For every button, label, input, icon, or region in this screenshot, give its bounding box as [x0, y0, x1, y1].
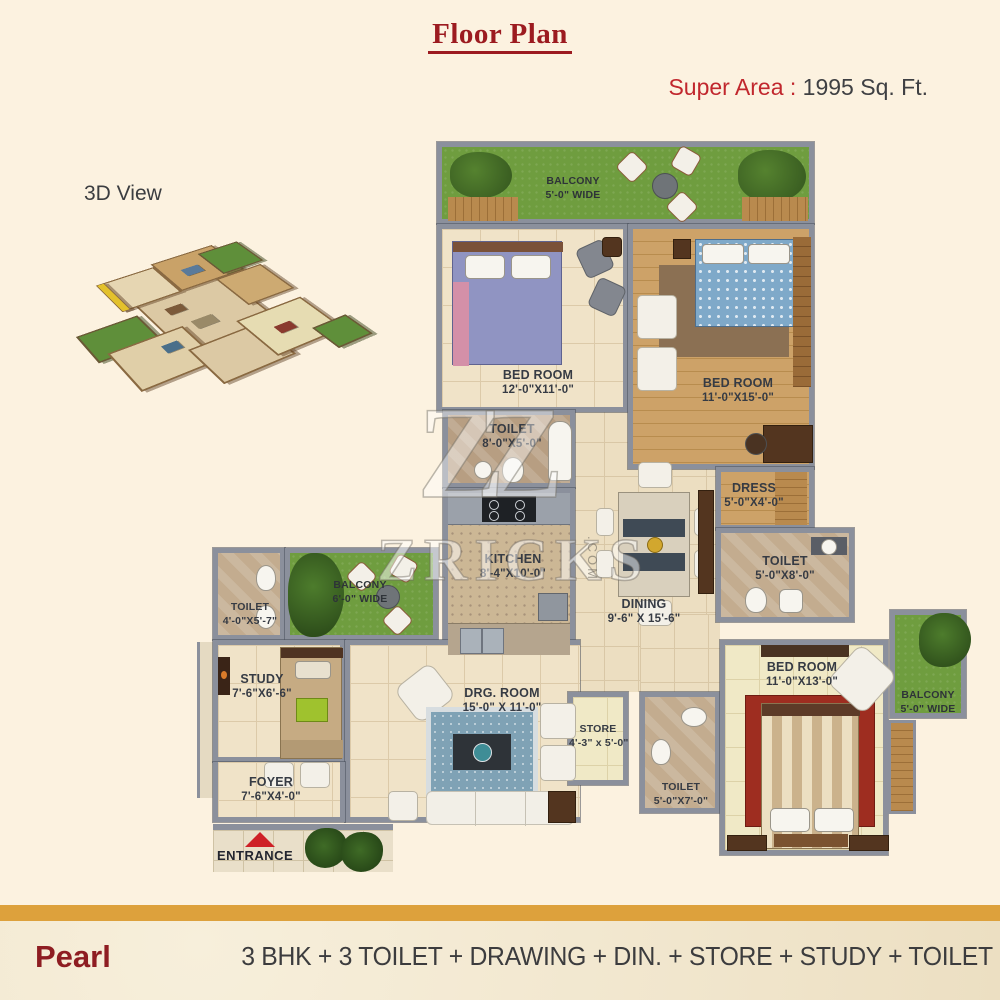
bed-blanket: [281, 740, 343, 758]
deck: [742, 197, 808, 221]
kitchen-sink: [482, 628, 504, 654]
room-label-store: STORE 4'-3" x 5'-0": [569, 723, 627, 750]
super-area: Super Area : 1995 Sq. Ft.: [668, 74, 928, 101]
3d-view-image: [40, 236, 369, 422]
footer: Pearl 3 BHK + 3 TOILET + DRAWING + DIN. …: [0, 921, 1000, 1000]
room-balcony-left: BALCONY 6'-0" WIDE: [285, 548, 438, 640]
room-label-balcony-left: BALCONY 6'-0" WIDE: [314, 579, 406, 606]
deck-strip: [888, 720, 916, 814]
decor-bowl: [473, 743, 492, 762]
view-3d-label: 3D View: [84, 182, 162, 206]
burner: [489, 511, 499, 521]
room-label-toilet-left: TOILET 4'-0"X5'-7": [218, 601, 282, 628]
room-label-toilet-2: TOILET 5'-0"X8'-0": [735, 553, 835, 584]
room-balcony-right: BALCONY 5'-0" WIDE: [890, 610, 966, 718]
patio-table: [652, 173, 678, 199]
toilet-seat: [651, 739, 671, 765]
room-label-balcony-top: BALCONY 5'-0" WIDE: [508, 175, 638, 202]
room-kitchen: KITCHEN 8'-4"X10'-0": [443, 488, 575, 660]
bed: [695, 239, 795, 327]
room-label-bedroom-1: BED ROOM 12'-0"X11'-0": [477, 367, 599, 398]
room-label-bedroom-3: BED ROOM 11'-0"X13'-0": [737, 659, 867, 690]
patio-chair: [381, 604, 414, 637]
side-table: [602, 237, 622, 257]
desk: [763, 425, 813, 463]
patio-chair: [670, 145, 703, 178]
room-toilet-3: TOILET 5'-0"X7'-0": [640, 692, 720, 813]
bed-bench: [774, 834, 848, 847]
footer-gold-bar: [0, 905, 1000, 921]
project-name: Pearl: [35, 939, 111, 975]
dining-runner: [623, 553, 685, 571]
page-title-text: Floor Plan: [428, 18, 572, 54]
room-toilet-left: TOILET 4'-0"X5'-7": [213, 548, 285, 640]
pillow: [748, 244, 790, 264]
armchair: [637, 347, 677, 391]
super-area-value: 1995 Sq. Ft.: [796, 74, 928, 100]
bush: [738, 150, 806, 202]
page-title: Floor Plan: [0, 18, 1000, 51]
washbasin: [681, 707, 707, 727]
bed: [280, 647, 342, 759]
window-ledge: [197, 642, 213, 798]
room-toilet-1: TOILET 8'-0"X5'-0": [443, 410, 575, 488]
bed-headboard: [453, 242, 563, 252]
dining-chair: [596, 508, 614, 536]
room-foyer: FOYER 7'-6"X4'-0": [213, 762, 345, 822]
sofa-seam: [475, 792, 476, 826]
stove: [482, 496, 536, 522]
room-label-study: STUDY 7'-6"X6'-6": [222, 671, 302, 702]
room-toilet-2: TOILET 5'-0"X8'-0": [716, 528, 854, 622]
dining-centerpiece: [647, 537, 663, 553]
wardrobe: [793, 237, 811, 387]
room-dress: DRESS 5'-0"X4'-0": [716, 467, 814, 530]
washbasin: [474, 461, 492, 479]
pillow: [511, 255, 551, 279]
kitchen-counter: [448, 493, 570, 525]
bed-blanket: [453, 282, 469, 366]
entrance-label: ENTRANCE: [217, 848, 293, 863]
side-table: [548, 791, 576, 823]
pillow: [702, 244, 744, 264]
configuration-text: 3 BHK + 3 TOILET + DRAWING + DIN. + STOR…: [241, 943, 969, 972]
room-label-toilet-1: TOILET 8'-0"X5'-0": [460, 421, 564, 452]
pillow: [770, 808, 810, 832]
fridge: [538, 593, 568, 621]
sideboard: [698, 490, 714, 594]
coffee-table: [453, 734, 511, 770]
room-store: STORE 4'-3" x 5'-0": [568, 692, 628, 785]
side-table: [849, 835, 889, 851]
room-label-dining: DINING 9'-6" X 15'-6": [594, 596, 694, 627]
ottoman: [388, 791, 418, 821]
desk-chair: [745, 433, 767, 455]
room-bedroom-3: BED ROOM 11'-0"X13'-0": [720, 640, 888, 855]
room-drawing: DRG. ROOM 15'-0" X 11'-0": [345, 640, 580, 822]
entrance-arrow-icon: [245, 832, 275, 847]
dining-chair: [638, 462, 672, 488]
room-label-toilet-3: TOILET 5'-0"X7'-0": [647, 781, 715, 808]
room-label-foyer: FOYER 7'-6"X4'-0": [226, 774, 316, 805]
room-label-drawing: DRG. ROOM 15'-0" X 11'-0": [442, 685, 562, 716]
room-bedroom-1: BED ROOM 12'-0"X11'-0": [437, 224, 628, 412]
toilet-seat: [256, 565, 276, 591]
kitchen-counter-sink: [448, 623, 570, 655]
kitchen-sink: [460, 628, 482, 654]
room-bedroom-2: BED ROOM 11'-0"X15'-0": [628, 224, 814, 469]
armchair: [637, 295, 677, 339]
floor-plan-3d-view: [30, 195, 370, 450]
room-balcony-top: BALCONY 5'-0" WIDE: [437, 142, 814, 224]
rug: [426, 707, 538, 797]
burner: [515, 500, 525, 510]
dining-chair: [596, 550, 614, 578]
room-label-dress: DRESS 5'-0"X4'-0": [723, 480, 785, 511]
armchair: [587, 276, 628, 318]
burner: [489, 500, 499, 510]
armchair: [540, 745, 576, 781]
bush: [450, 152, 512, 198]
bedside-table: [673, 239, 691, 259]
dining-runner: [623, 519, 685, 537]
super-area-label: Super Area :: [668, 74, 796, 100]
pillow: [465, 255, 505, 279]
entrance-area: ENTRANCE: [213, 824, 393, 872]
pillow: [814, 808, 854, 832]
room-label-bedroom-2: BED ROOM 11'-0"X15'-0": [673, 375, 803, 406]
room-label-kitchen: KITCHEN 8'-4"X10'-0": [451, 551, 575, 582]
bed-headboard: [281, 648, 343, 658]
side-table: [727, 835, 767, 851]
tv-unit: [761, 645, 849, 657]
palm-plant: [341, 832, 383, 872]
burner: [515, 511, 525, 521]
bed: [761, 703, 859, 849]
floor-plan-page: Floor Plan Super Area : 1995 Sq. Ft. 3D …: [0, 0, 1000, 1000]
bed: [452, 241, 562, 365]
dining-table: [618, 492, 690, 597]
room-study: STUDY 7'-6"X6'-6": [213, 640, 345, 762]
bed-headboard: [762, 704, 860, 716]
room-label-balcony-right: BALCONY 5'-0" WIDE: [897, 689, 959, 716]
tree: [919, 613, 971, 667]
sofa-seam: [525, 792, 526, 826]
shower: [779, 589, 803, 613]
toilet-seat: [502, 457, 524, 483]
toilet-seat: [745, 587, 767, 613]
